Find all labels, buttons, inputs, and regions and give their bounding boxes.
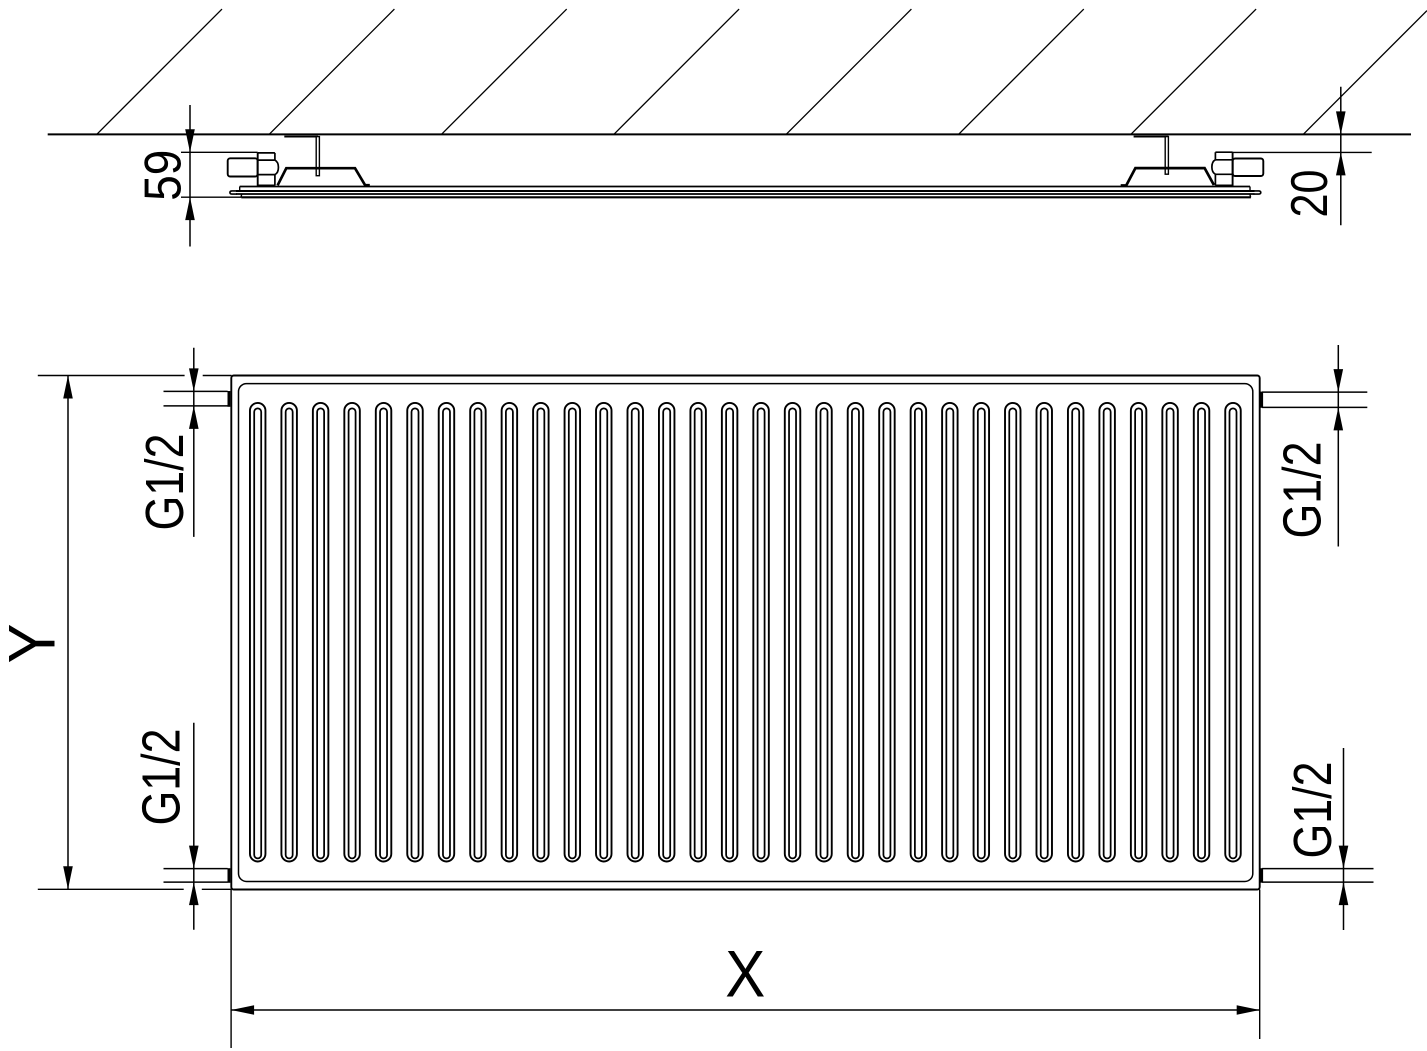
svg-text:Y: Y [0,624,68,664]
svg-text:G1/2: G1/2 [135,434,195,531]
svg-text:G1/2: G1/2 [132,729,192,826]
svg-text:59: 59 [135,150,193,201]
svg-text:20: 20 [1281,170,1339,218]
svg-text:X: X [725,936,765,1010]
svg-text:G1/2: G1/2 [1273,442,1333,539]
svg-text:G1/2: G1/2 [1283,762,1343,859]
